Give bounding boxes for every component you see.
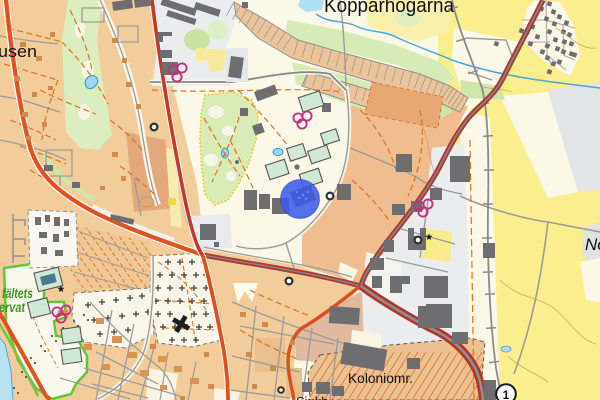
svg-text:usen: usen	[0, 42, 37, 61]
svg-text:No: No	[585, 235, 600, 254]
svg-text:Sjukh.: Sjukh.	[296, 394, 332, 400]
svg-text:Koloniomr.: Koloniomr.	[348, 370, 413, 386]
svg-text:fältets: fältets	[2, 286, 33, 301]
svg-text:1: 1	[503, 388, 510, 400]
svg-text:Kopparhögarna: Kopparhögarna	[324, 0, 455, 17]
svg-text:ervat: ervat	[0, 300, 25, 315]
